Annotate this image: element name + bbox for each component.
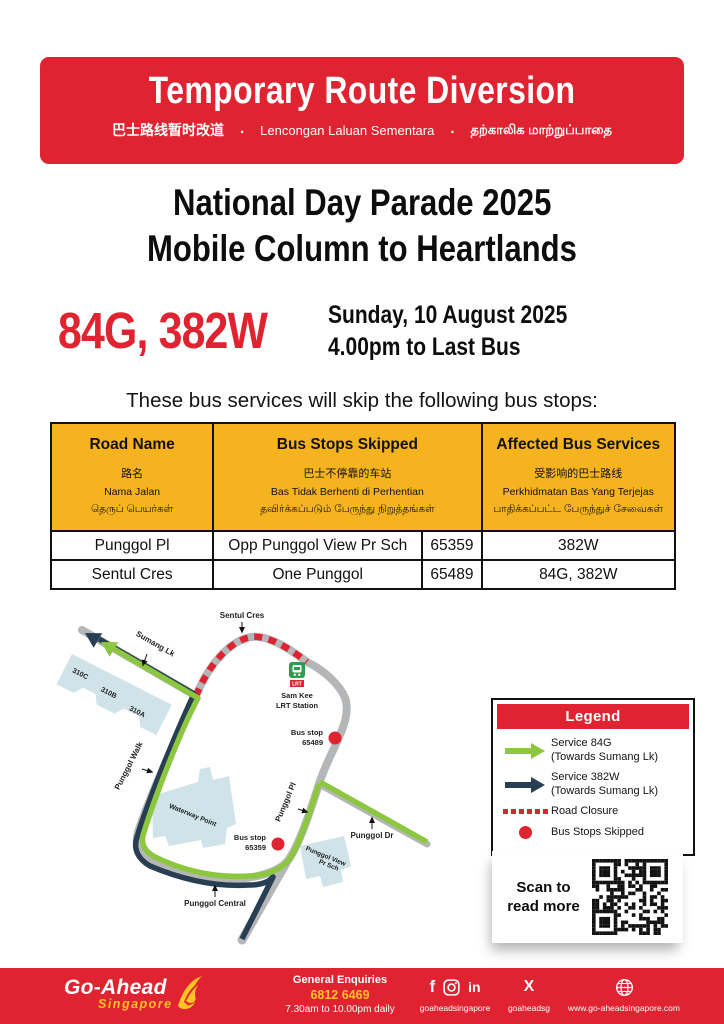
enquiries-hours: 7.30am to 10.00pm daily — [276, 1004, 404, 1015]
instagram-icon — [443, 979, 460, 996]
go-ahead-logo: Go-Ahead Singapore — [64, 976, 173, 1011]
social-group-x: X goaheadsg — [503, 976, 555, 1013]
roads — [82, 630, 427, 940]
separator-dot: . — [450, 120, 454, 137]
affected-services: 84G, 382W — [58, 301, 307, 360]
table-row: Sentul Cres One Punggol 65489 84G, 382W — [51, 560, 675, 589]
cell-services: 84G, 382W — [482, 560, 675, 589]
cell-services: 382W — [482, 531, 675, 560]
punggol-central-label: Punggol Central — [184, 899, 246, 908]
bus-stop-65489-dot — [329, 732, 342, 745]
enquiries-phone: 6812 6469 — [276, 988, 404, 1002]
legend-item-stops-skipped: Bus Stops Skipped — [499, 826, 687, 840]
sentul-cres-label: Sentul Cres — [220, 611, 265, 620]
cell-road: Punggol Pl — [51, 531, 213, 560]
banner-subtitle-chinese: 巴士路线暂时改道 — [112, 120, 224, 140]
punggol-walk-pointer — [142, 769, 152, 772]
banner-subtitle-malay: Lencongan Laluan Sementara — [260, 123, 434, 138]
legend-item-road-closure: Road Closure — [499, 805, 687, 819]
cell-code: 65359 — [422, 531, 481, 560]
banner: Temporary Route Diversion 巴士路线暂时改道 . Len… — [40, 57, 684, 164]
sam-kee-label-line1: Sam Kee — [281, 691, 313, 700]
social-handle: goaheadsingapore — [412, 1003, 498, 1013]
sam-kee-label-line2: LRT Station — [276, 701, 318, 710]
event-datetime: Sunday, 10 August 2025 4.00pm to Last Bu… — [328, 299, 613, 363]
red-dot-icon — [499, 826, 551, 839]
event-date: Sunday, 10 August 2025 — [328, 299, 567, 331]
website-url: www.go-aheadsingapore.com — [556, 1003, 692, 1013]
cell-road: Sentul Cres — [51, 560, 213, 589]
cell-stop: One Punggol — [213, 560, 422, 589]
intro-text: These bus services will skip the followi… — [0, 389, 724, 413]
banner-title: Temporary Route Diversion — [40, 70, 684, 113]
bus-stop-65359-dot — [272, 838, 285, 851]
punggol-view-school-building: Punggol View Pr Sch — [300, 836, 351, 887]
banner-title-text: Temporary Route Diversion — [149, 70, 576, 113]
x-icon: X — [524, 978, 535, 996]
website-group: www.go-aheadsingapore.com — [556, 976, 692, 1013]
route-diversion-poster: Temporary Route Diversion 巴士路线暂时改道 . Len… — [0, 0, 724, 1024]
bus-stop-65489-label: Bus stop — [291, 728, 324, 737]
globe-icon — [615, 978, 634, 997]
punggol-pl-label: Punggol Pl — [273, 781, 298, 823]
social-group-main: f in goaheadsingapore — [412, 976, 498, 1013]
banner-subtitle: 巴士路线暂时改道 . Lencongan Laluan Sementara . … — [40, 120, 684, 140]
general-enquiries: General Enquiries 6812 6469 7.30am to 10… — [276, 974, 404, 1015]
punggol-walk-label: Punggol Walk — [113, 740, 145, 791]
header-affected-services: Affected Bus Services 受影响的巴士路线 Perkhidma… — [482, 423, 675, 531]
facebook-icon: f — [429, 977, 435, 997]
route-map: 310C 310B 310A Waterway Point Punggol Vi… — [52, 606, 492, 966]
lion-mane-icon — [172, 972, 206, 1012]
qr-panel: Scan to read more — [492, 851, 683, 943]
header-road-name: Road Name 路名 Nama Jalan தெருப் பெயர்கள் — [51, 423, 213, 531]
legend: Legend Service 84G(Towards Sumang Lk) Se… — [491, 698, 695, 856]
cell-stop: Opp Punggol View Pr Sch — [213, 531, 422, 560]
navy-arrow-icon — [499, 777, 551, 793]
linkedin-icon: in — [468, 979, 480, 995]
bus-stop-65359-label: Bus stop — [234, 833, 267, 842]
skipped-stops-table: Road Name 路名 Nama Jalan தெருப் பெயர்கள் … — [50, 422, 676, 590]
table-header-row: Road Name 路名 Nama Jalan தெருப் பெயர்கள் … — [51, 423, 675, 531]
event-headline: National Day Parade 2025 Mobile Column t… — [0, 180, 724, 272]
hdb-blocks-310: 310C 310B 310A — [57, 654, 172, 735]
qr-caption: Scan to read more — [507, 878, 580, 916]
separator-dot: . — [240, 120, 244, 137]
lrt-tag: LRT — [292, 682, 302, 688]
footer: Go-Ahead Singapore General Enquiries 681… — [0, 968, 724, 1024]
legend-item-84g: Service 84G(Towards Sumang Lk) — [499, 737, 687, 764]
enquiries-title: General Enquiries — [276, 974, 404, 986]
lrt-station-icon: LRT — [289, 662, 305, 688]
punggol-pl-pointer — [298, 809, 307, 812]
logo-text-singapore: Singapore — [98, 997, 173, 1011]
headline-line2: Mobile Column to Heartlands — [147, 226, 577, 272]
header-bus-stops-skipped: Bus Stops Skipped 巴士不停靠的车站 Bas Tidak Ber… — [213, 423, 481, 531]
x-handle: goaheadsg — [503, 1003, 555, 1013]
bus-stop-65359-code: 65359 — [245, 843, 266, 852]
banner-subtitle-tamil: தற்காலிக மாற்றுப்பாதை — [471, 122, 612, 139]
road-closure-icon — [499, 809, 551, 814]
legend-item-382w: Service 382W(Towards Sumang Lk) — [499, 771, 687, 798]
event-time: 4.00pm to Last Bus — [328, 331, 521, 363]
qr-code — [592, 859, 668, 935]
table-row: Punggol Pl Opp Punggol View Pr Sch 65359… — [51, 531, 675, 560]
legend-title: Legend — [497, 704, 689, 729]
bus-stop-65489-code: 65489 — [302, 738, 323, 747]
green-arrow-icon — [499, 743, 551, 759]
headline-line1: National Day Parade 2025 — [173, 180, 551, 226]
cell-code: 65489 — [422, 560, 481, 589]
punggol-dr-label: Punggol Dr — [350, 831, 393, 840]
sumang-lk-label: Sumang Lk — [134, 629, 176, 659]
